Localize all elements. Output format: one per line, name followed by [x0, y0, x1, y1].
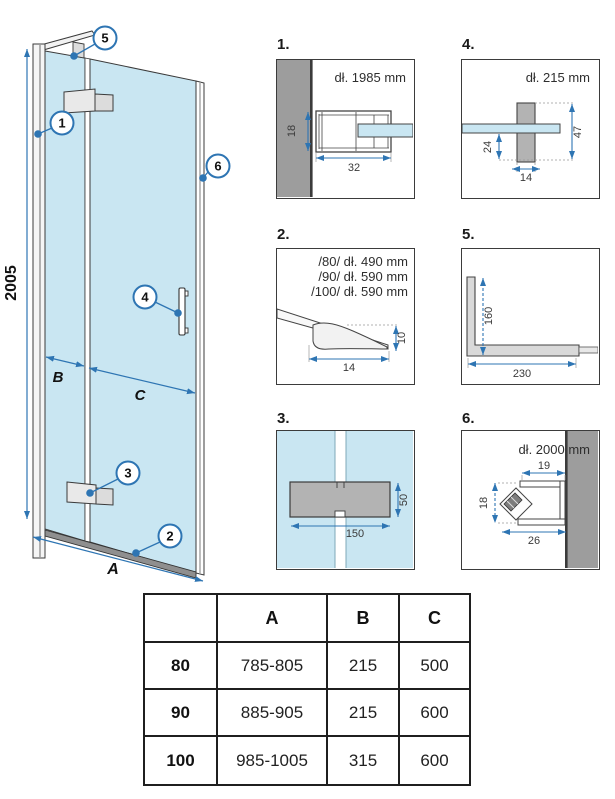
svg-text:19: 19	[538, 460, 550, 472]
panel-divider	[85, 58, 90, 542]
svg-text:6: 6	[214, 159, 221, 174]
wall-profile	[33, 44, 45, 558]
size-80: 80	[144, 642, 217, 689]
dim-height: 2005	[3, 49, 27, 519]
detail-2-label: 2.	[277, 226, 290, 243]
detail-6-length: dł. 2000 mm	[518, 442, 590, 457]
svg-text:10: 10	[396, 332, 408, 344]
detail-4-drawing: dł. 215 mm 24 47 14	[462, 60, 598, 197]
svg-text:14: 14	[520, 172, 532, 184]
hinge-plate	[290, 482, 390, 517]
value-100-c: 600	[399, 736, 470, 785]
dim-24: 24	[482, 134, 499, 159]
svg-text:1: 1	[58, 116, 65, 131]
detail-panel-6: dł. 2000 mm 19 18	[461, 430, 600, 570]
detail-1-length: dł. 1985 mm	[334, 70, 406, 85]
detail-3-label: 3.	[277, 410, 290, 427]
svg-text:C: C	[135, 387, 147, 404]
svg-text:230: 230	[513, 368, 531, 380]
svg-text:B: B	[53, 369, 64, 386]
dim-47: 47	[572, 104, 584, 159]
svg-text:5: 5	[101, 31, 108, 46]
table-header-row: A B C	[144, 594, 470, 642]
detail-4-label: 4.	[462, 36, 475, 53]
main-drawing: 2005 B C A 1 2	[0, 0, 245, 600]
value-90-c: 600	[399, 689, 470, 736]
glass-edge	[579, 347, 598, 353]
svg-text:24: 24	[482, 141, 494, 153]
detail-1-drawing: dł. 1985 mm 18 32	[277, 60, 413, 197]
table-row-80: 80 785-805 215 500	[144, 642, 470, 689]
svg-text:18: 18	[286, 125, 298, 137]
value-80-a: 785-805	[217, 642, 327, 689]
svg-text:26: 26	[528, 535, 540, 547]
detail-2-drawing: /80/ dł. 490 mm /90/ dł. 590 mm /100/ dł…	[277, 249, 413, 383]
svg-text:14: 14	[343, 362, 355, 374]
detail-4-length: dł. 215 mm	[526, 70, 590, 85]
table-row-100: 100 985-1005 315 600	[144, 736, 470, 785]
value-90-a: 885-905	[217, 689, 327, 736]
detail-panel-1: dł. 1985 mm 18 32	[276, 59, 415, 199]
dim-230: 230	[468, 358, 576, 380]
shower-door-installation-diagram: 2005 B C A 1 2	[0, 0, 615, 799]
value-80-b: 215	[327, 642, 399, 689]
svg-text:A: A	[106, 561, 119, 578]
glass-edge	[358, 124, 413, 137]
size-table: A B C 80 785-805 215 500 90 885-905 215 …	[143, 593, 471, 786]
dim-26: 26	[502, 532, 566, 547]
glass-edge	[462, 124, 560, 133]
detail-2-length-100: /100/ dł. 590 mm	[311, 284, 408, 299]
seal-profile	[277, 309, 388, 349]
svg-text:18: 18	[478, 497, 490, 509]
header-b: B	[327, 594, 399, 642]
value-100-a: 985-1005	[217, 736, 327, 785]
dim-160: 160	[483, 278, 495, 355]
svg-text:32: 32	[348, 162, 360, 174]
detail-panel-4: dł. 215 mm 24 47 14	[461, 59, 600, 199]
svg-text:160: 160	[483, 307, 495, 325]
svg-text:2: 2	[166, 529, 173, 544]
table-row-90: 90 885-905 215 600	[144, 689, 470, 736]
header-empty	[144, 594, 217, 642]
detail-panel-3: 50 150	[276, 430, 415, 570]
svg-text:4: 4	[141, 290, 149, 305]
top-support-bar	[37, 31, 95, 51]
detail-2-length-80: /80/ dł. 490 mm	[318, 254, 408, 269]
right-profile	[196, 81, 204, 575]
detail-3-drawing: 50 150	[277, 431, 413, 568]
value-100-b: 315	[327, 736, 399, 785]
magnet-profile-section	[500, 481, 565, 525]
dim-18: 18	[478, 483, 495, 523]
header-c: C	[399, 594, 470, 642]
value-90-b: 215	[327, 689, 399, 736]
dim-19: 19	[522, 460, 565, 480]
svg-text:2005: 2005	[3, 265, 20, 301]
detail-panel-5: 160 230	[461, 248, 600, 385]
svg-text:3: 3	[124, 466, 131, 481]
size-90: 90	[144, 689, 217, 736]
detail-6-label: 6.	[462, 410, 475, 427]
header-a: A	[217, 594, 327, 642]
detail-2-length-90: /90/ dł. 590 mm	[318, 269, 408, 284]
svg-text:47: 47	[572, 126, 584, 138]
detail-1-label: 1.	[277, 36, 290, 53]
dim-32: 32	[316, 153, 391, 174]
detail-5-label: 5.	[462, 226, 475, 243]
detail-5-drawing: 160 230	[462, 249, 598, 383]
dim-10: 10	[396, 326, 408, 351]
svg-text:50: 50	[398, 494, 410, 506]
detail-panel-2: /80/ dł. 490 mm /90/ dł. 590 mm /100/ dł…	[276, 248, 415, 385]
svg-text:150: 150	[346, 528, 364, 540]
value-80-c: 500	[399, 642, 470, 689]
detail-6-drawing: dł. 2000 mm 19 18	[462, 431, 598, 568]
dim-14: 14	[512, 169, 540, 184]
size-100: 100	[144, 736, 217, 785]
